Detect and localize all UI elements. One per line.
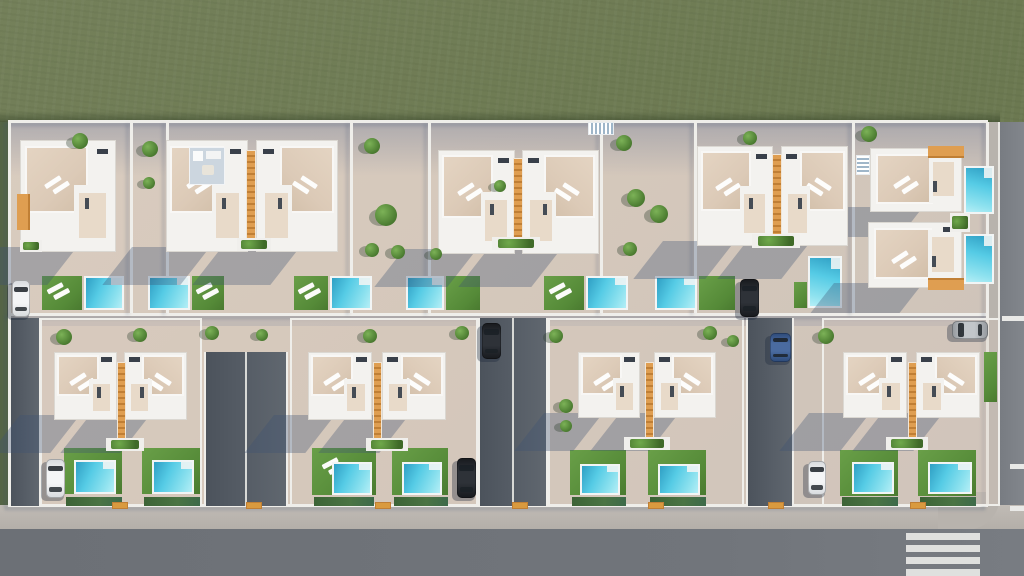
tree xyxy=(650,205,668,223)
window-slit xyxy=(932,386,936,397)
exterior-stairs xyxy=(856,155,870,175)
sun-loungers xyxy=(298,280,325,304)
villa xyxy=(870,148,962,212)
roof-terrace xyxy=(929,156,958,203)
gate-orange xyxy=(246,502,262,509)
swimming-pool xyxy=(655,276,697,310)
windshield xyxy=(48,466,62,471)
terrace-floor xyxy=(79,193,106,237)
parked-car-white xyxy=(12,280,30,317)
planter-green xyxy=(758,236,794,246)
windshield xyxy=(958,323,963,337)
planter-green xyxy=(630,439,665,448)
aerial-villa-development-render xyxy=(0,0,1024,576)
swimming-pool xyxy=(74,460,116,494)
planter-box xyxy=(752,234,800,248)
window-slit xyxy=(97,387,101,398)
stair-divider-orange xyxy=(117,362,126,440)
gate-orange xyxy=(112,502,128,509)
stairwell-slit xyxy=(230,149,241,154)
gate-orange xyxy=(910,502,926,509)
kitchen-unit xyxy=(193,151,203,160)
roof-terrace xyxy=(74,185,111,247)
rear-glass xyxy=(743,306,757,311)
gate-orange xyxy=(512,502,528,509)
swimming-pool xyxy=(964,234,994,284)
gate-orange xyxy=(375,502,391,509)
lane-dash xyxy=(1010,464,1024,469)
right-road xyxy=(998,122,1024,534)
roof-terrace xyxy=(879,378,904,414)
terrace-floor xyxy=(530,200,552,241)
tree xyxy=(143,177,155,189)
hedge-strip xyxy=(572,497,626,506)
terrace-floor xyxy=(788,194,807,234)
villa xyxy=(654,352,716,418)
planter-box xyxy=(492,237,540,250)
tree xyxy=(627,189,645,207)
kitchen-table xyxy=(202,165,214,175)
tree xyxy=(364,138,380,154)
lane-dash xyxy=(1010,506,1024,511)
hedge-strip xyxy=(394,497,448,506)
rear-glass xyxy=(773,354,788,357)
tree xyxy=(365,243,379,257)
tree xyxy=(703,326,717,340)
swimming-pool xyxy=(852,462,894,494)
rear-glass xyxy=(15,307,28,311)
kitchen-unit xyxy=(206,151,221,159)
stair-divider-orange xyxy=(645,362,654,438)
stairwell-slit xyxy=(387,357,398,362)
sun-loungers xyxy=(47,280,74,304)
perimeter-wall xyxy=(8,313,988,316)
stairwell-slit xyxy=(97,149,108,154)
parked-car-white xyxy=(808,461,826,495)
parked-car-silver xyxy=(952,321,988,339)
window-slit xyxy=(670,386,674,397)
roof-loungers xyxy=(893,172,923,200)
terrace-floor xyxy=(265,193,288,237)
terrace-floor xyxy=(347,384,365,411)
gate-orange xyxy=(648,502,664,509)
stairwell-slit xyxy=(756,154,767,159)
villa xyxy=(697,146,773,246)
window-slit xyxy=(85,198,89,209)
stairwell-slit xyxy=(498,158,509,163)
stairwell-slit xyxy=(129,357,140,362)
pool-step xyxy=(615,278,626,285)
street-divider-wall xyxy=(512,318,514,506)
terrace-floor xyxy=(485,200,507,241)
roof-terrace xyxy=(613,378,637,414)
swimming-pool xyxy=(658,464,700,495)
rear-glass xyxy=(460,487,474,492)
roof-terrace xyxy=(344,379,369,416)
pool-step xyxy=(687,466,698,472)
tree xyxy=(743,131,757,145)
crosswalk-stripe xyxy=(906,557,980,564)
parked-car-white xyxy=(46,459,65,498)
windshield xyxy=(459,465,473,471)
windshield xyxy=(810,467,824,472)
lawn-patch xyxy=(984,352,997,402)
planter-green xyxy=(241,240,267,249)
exterior-stairs xyxy=(588,122,614,135)
stairwell-slit xyxy=(101,357,112,362)
window-slit xyxy=(887,386,891,397)
planter-box xyxy=(366,438,408,451)
swimming-pool xyxy=(152,460,194,494)
roof-terrace xyxy=(928,230,958,279)
stair-divider-orange xyxy=(513,158,523,246)
windshield xyxy=(484,329,498,334)
stairwell-slit xyxy=(921,357,932,362)
planter-green xyxy=(891,439,923,448)
window-slit xyxy=(932,256,936,267)
roof-terrace xyxy=(784,186,810,241)
lawn-patch xyxy=(544,276,584,310)
parked-car-black xyxy=(457,458,476,498)
pergola-orange xyxy=(928,146,964,158)
tree xyxy=(560,420,572,432)
street-divider-wall xyxy=(245,352,247,506)
stairwell-slit xyxy=(528,158,539,163)
windshield xyxy=(742,286,756,291)
perimeter-wall xyxy=(8,120,988,123)
planter-box xyxy=(106,438,144,451)
windshield xyxy=(14,287,28,292)
window-slit xyxy=(543,204,547,215)
lawn-patch xyxy=(794,282,807,308)
window-slit xyxy=(749,198,753,209)
planter-green xyxy=(498,239,534,248)
stair-divider-orange xyxy=(772,154,782,240)
pergola-orange xyxy=(928,278,964,290)
window-slit xyxy=(140,387,144,398)
swimming-pool xyxy=(402,462,442,495)
planter-box xyxy=(20,240,42,252)
swimming-pool xyxy=(928,462,972,494)
stairwell-slit xyxy=(891,357,902,362)
villa xyxy=(916,352,980,418)
crosswalk-stripe xyxy=(906,569,980,576)
planter-box xyxy=(950,213,970,232)
tree xyxy=(455,326,469,340)
lane-dash xyxy=(1002,316,1024,321)
planter-box xyxy=(624,437,670,450)
rear-glass xyxy=(978,324,982,337)
windshield xyxy=(773,338,789,342)
tree xyxy=(375,204,397,226)
pool-step xyxy=(359,278,370,285)
terrace-floor xyxy=(744,194,765,234)
tree xyxy=(494,180,506,192)
stairwell-slit xyxy=(624,357,635,362)
crosswalk-stripe xyxy=(906,533,980,540)
tree xyxy=(56,329,72,345)
tree xyxy=(818,328,834,344)
roof-kitchen-deck xyxy=(189,147,225,185)
pool-step xyxy=(984,168,992,178)
swimming-pool xyxy=(586,276,628,310)
swimming-pool xyxy=(964,166,994,214)
tree xyxy=(133,328,147,342)
tree xyxy=(142,141,158,157)
parked-car-black xyxy=(740,279,759,317)
window-slit xyxy=(620,386,624,397)
terrace-floor xyxy=(216,193,239,237)
sun-loungers xyxy=(549,280,576,304)
planter-green xyxy=(371,440,403,449)
window-slit xyxy=(490,204,494,215)
villa xyxy=(166,140,248,252)
tree xyxy=(549,329,563,343)
tree xyxy=(559,399,573,413)
roof-loungers xyxy=(44,172,74,200)
hedge-strip xyxy=(920,497,976,506)
planter-green xyxy=(111,440,140,449)
pergola-orange xyxy=(17,194,30,230)
villa xyxy=(382,352,446,420)
rear-glass xyxy=(485,349,499,353)
window-slit xyxy=(398,387,402,398)
stairwell-slit xyxy=(263,149,274,154)
bottom-road xyxy=(0,529,1024,576)
pool-step xyxy=(103,462,114,469)
planter-green xyxy=(23,242,40,250)
tree xyxy=(727,335,739,347)
lawn-patch xyxy=(699,276,735,310)
terrace-floor xyxy=(93,384,111,411)
tree xyxy=(861,126,877,142)
tree xyxy=(256,329,268,341)
window-slit xyxy=(222,198,226,209)
villa xyxy=(256,140,338,252)
stairwell-slit xyxy=(356,357,367,362)
gate-orange xyxy=(768,502,784,509)
hedge-strip xyxy=(842,497,898,506)
window-slit xyxy=(933,181,937,192)
window-slit xyxy=(278,198,282,209)
pool-step xyxy=(181,462,192,469)
villa xyxy=(843,352,907,418)
lawn-patch xyxy=(294,276,328,310)
roof-loungers xyxy=(288,172,318,200)
tree xyxy=(391,245,405,259)
tree xyxy=(205,326,219,340)
driveway-street xyxy=(9,318,41,506)
parked-car-blue xyxy=(770,333,791,362)
stair-divider-orange xyxy=(373,362,382,440)
window-slit xyxy=(798,198,802,209)
tree xyxy=(72,133,88,149)
hedge-strip xyxy=(144,497,200,506)
roof-main xyxy=(874,228,932,279)
villa xyxy=(124,352,187,420)
parked-car-black xyxy=(482,323,501,359)
villa xyxy=(578,352,640,418)
tree xyxy=(616,135,632,151)
villa xyxy=(308,352,372,420)
stairwell-slit xyxy=(786,154,797,159)
pool-step xyxy=(881,464,892,470)
tree xyxy=(363,329,377,343)
pool-step xyxy=(958,464,970,470)
stair-divider-orange xyxy=(908,362,917,438)
tree xyxy=(623,242,637,256)
window-slit xyxy=(352,387,356,398)
rear-glass xyxy=(49,487,63,492)
planter-box xyxy=(886,437,928,450)
roof-main xyxy=(876,154,933,204)
villa xyxy=(868,222,962,288)
pool-step xyxy=(429,464,440,470)
stair-divider-orange xyxy=(246,150,256,246)
stairwell-slit xyxy=(659,357,670,362)
tree xyxy=(430,248,442,260)
pool-step xyxy=(831,258,840,269)
hedge-strip xyxy=(314,497,374,506)
villa xyxy=(54,352,117,420)
swimming-pool xyxy=(330,276,372,310)
planter-green xyxy=(952,216,967,229)
villa xyxy=(20,140,116,252)
pool-step xyxy=(359,464,370,470)
roof-loungers xyxy=(891,247,921,275)
swimming-pool xyxy=(580,464,620,495)
villa xyxy=(781,146,848,246)
terrace-floor xyxy=(616,383,633,409)
pool-step xyxy=(607,466,618,472)
terrace-floor xyxy=(882,383,900,409)
roof-terrace xyxy=(89,379,114,416)
rear-glass xyxy=(811,485,824,489)
pool-step xyxy=(984,236,992,246)
planter-box xyxy=(237,238,271,251)
roof-terrace xyxy=(740,186,770,241)
swimming-pool xyxy=(332,462,372,495)
crosswalk-stripe xyxy=(906,545,980,552)
